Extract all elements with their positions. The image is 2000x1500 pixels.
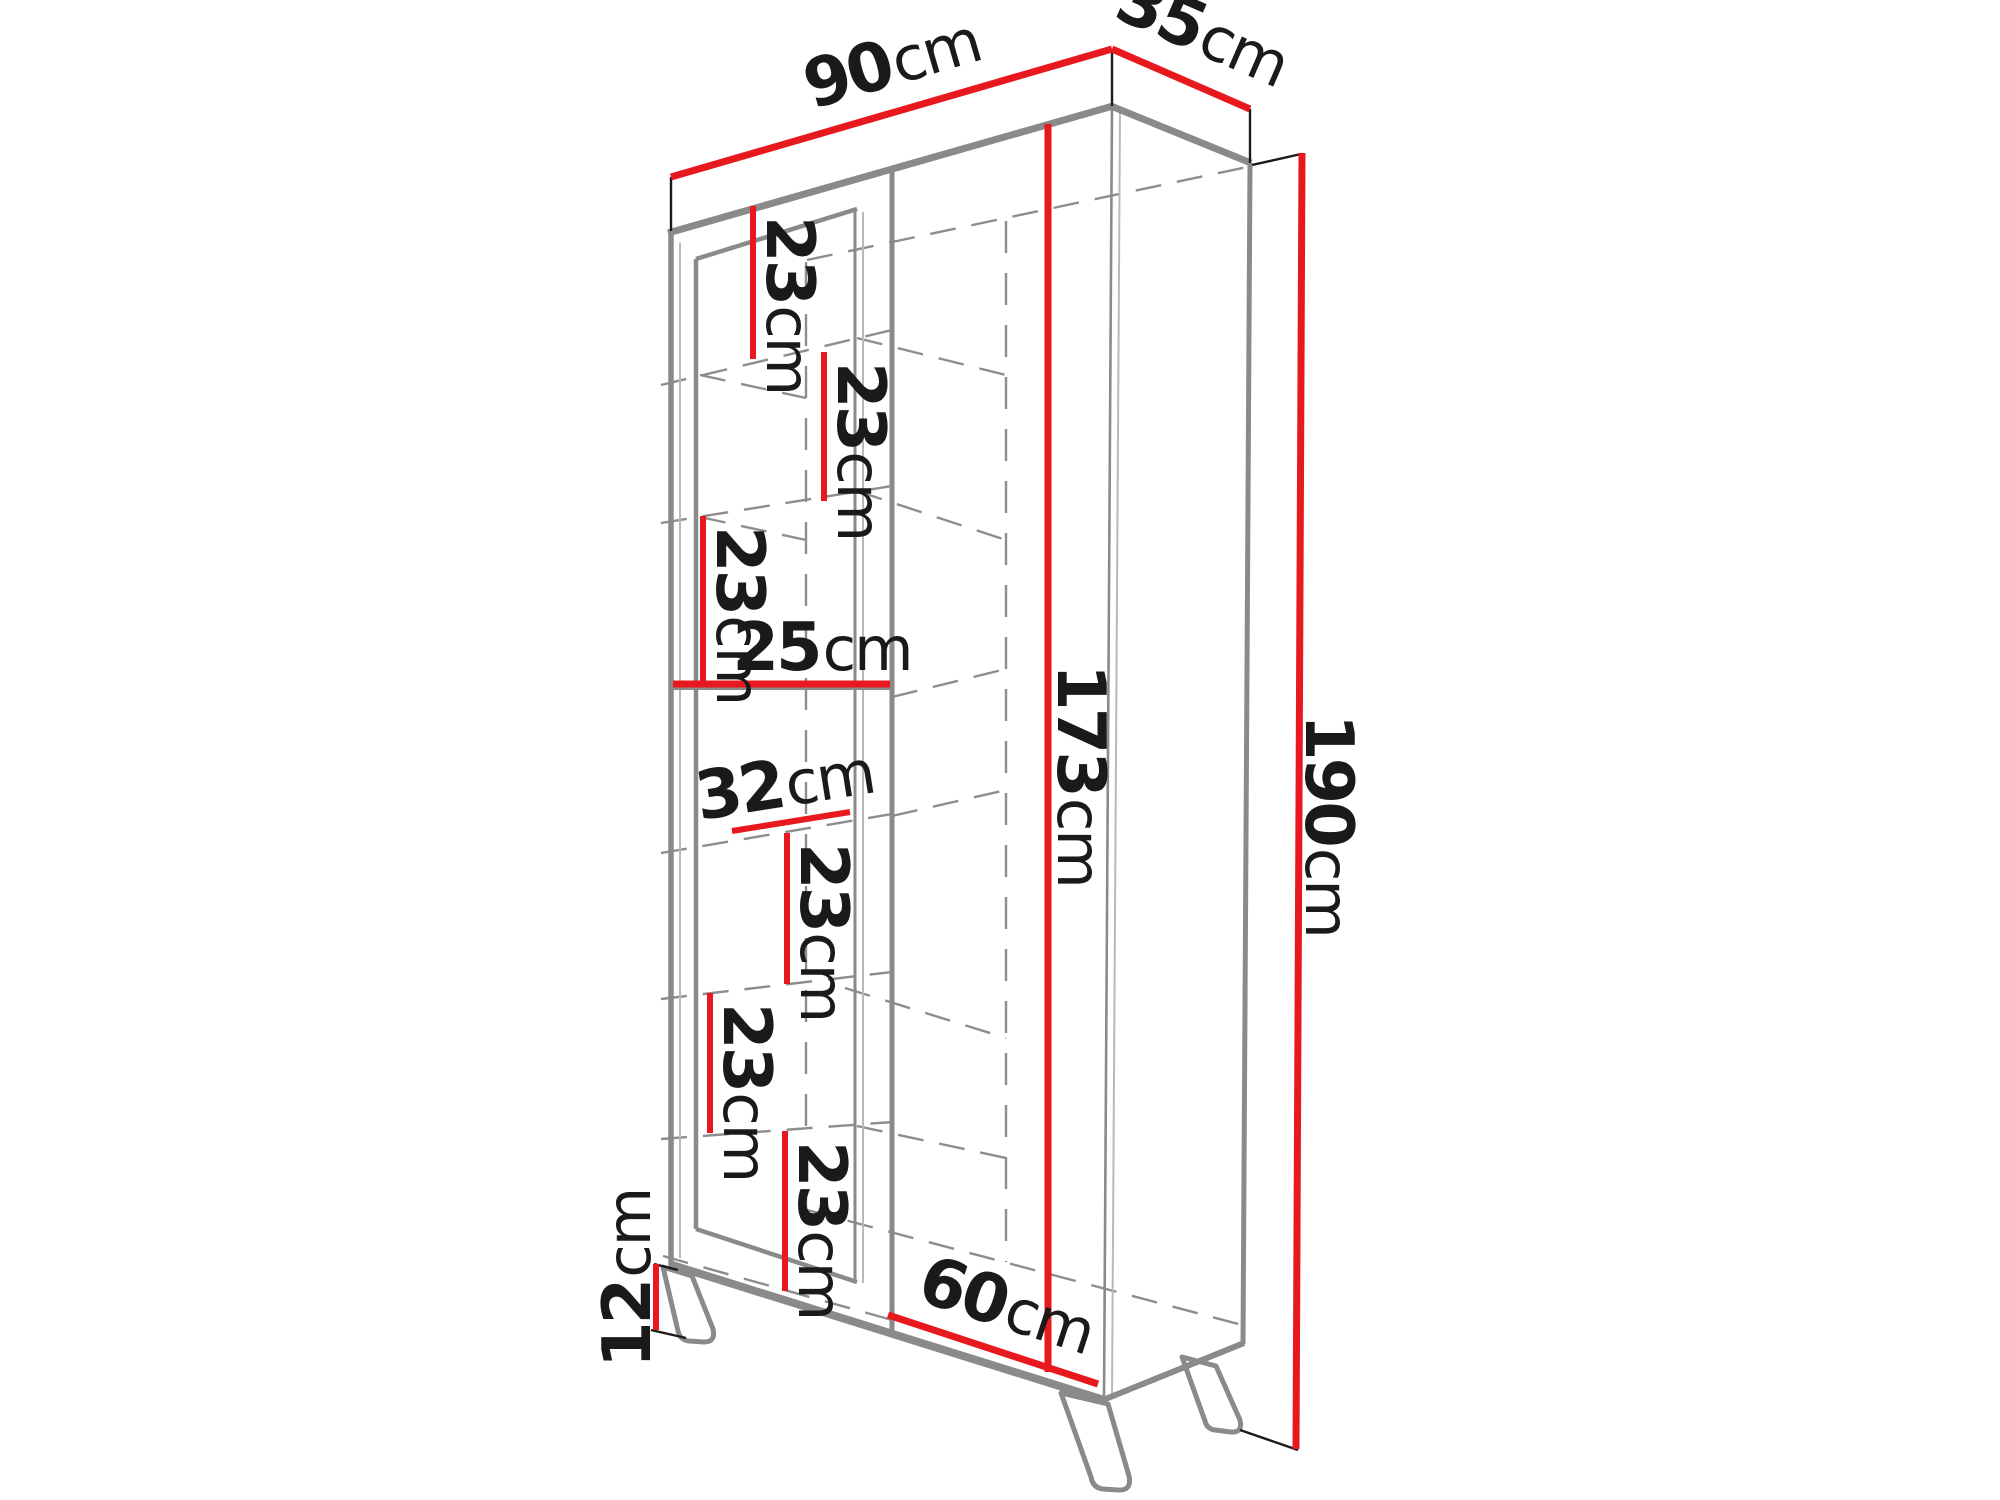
- dim-label-23cm-3: 23cm: [701, 526, 779, 704]
- top-back-edge: [807, 167, 1247, 260]
- dim-label-190cm: 190cm: [1290, 714, 1368, 937]
- dim-label-23cm-5: 23cm: [708, 1003, 786, 1181]
- back-right-edge: [1243, 163, 1250, 1344]
- front-right-leg: [1061, 1393, 1130, 1490]
- dim-label-23cm-2: 23cm: [822, 362, 900, 540]
- dim-label-23cm-6: 23cm: [783, 1141, 861, 1319]
- dim-label-23cm-4: 23cm: [785, 843, 863, 1021]
- diagram-canvas: 90cm 35cm 190cm 173cm 12cm 25cm 32cm 60c…: [0, 0, 2000, 1500]
- wardrobe-dimension-diagram: 90cm 35cm 190cm 173cm 12cm 25cm 32cm 60c…: [0, 0, 2000, 1500]
- back-right-leg: [1182, 1357, 1241, 1432]
- dim-label-90cm: 90cm: [795, 0, 989, 124]
- dim-label-173cm: 173cm: [1042, 664, 1120, 887]
- dim-label-23cm-1: 23cm: [751, 216, 829, 394]
- dim-label-12cm: 12cm: [588, 1189, 666, 1368]
- top-side-edge: [1111, 106, 1251, 163]
